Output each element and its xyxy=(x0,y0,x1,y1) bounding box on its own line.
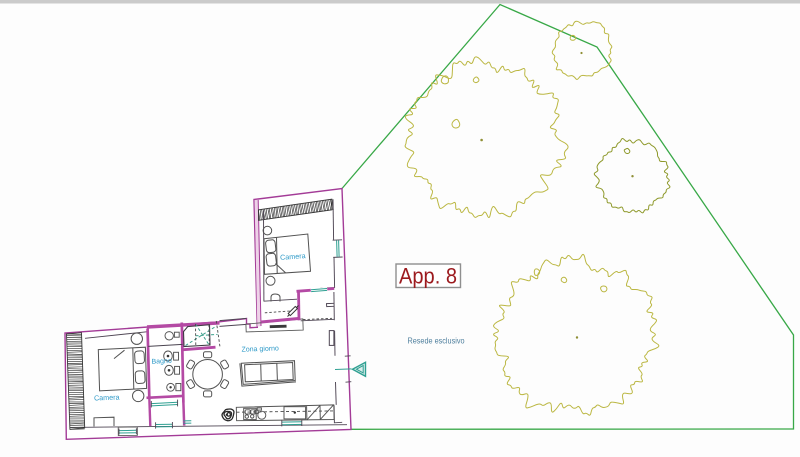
svg-text:Bagno: Bagno xyxy=(151,358,172,366)
svg-text:App. 8: App. 8 xyxy=(399,264,457,289)
svg-text:Resede esclusivo: Resede esclusivo xyxy=(408,336,465,346)
svg-text:Camera: Camera xyxy=(94,393,120,403)
svg-text:Camera: Camera xyxy=(280,251,306,262)
svg-text:Zona giorno: Zona giorno xyxy=(241,345,279,353)
